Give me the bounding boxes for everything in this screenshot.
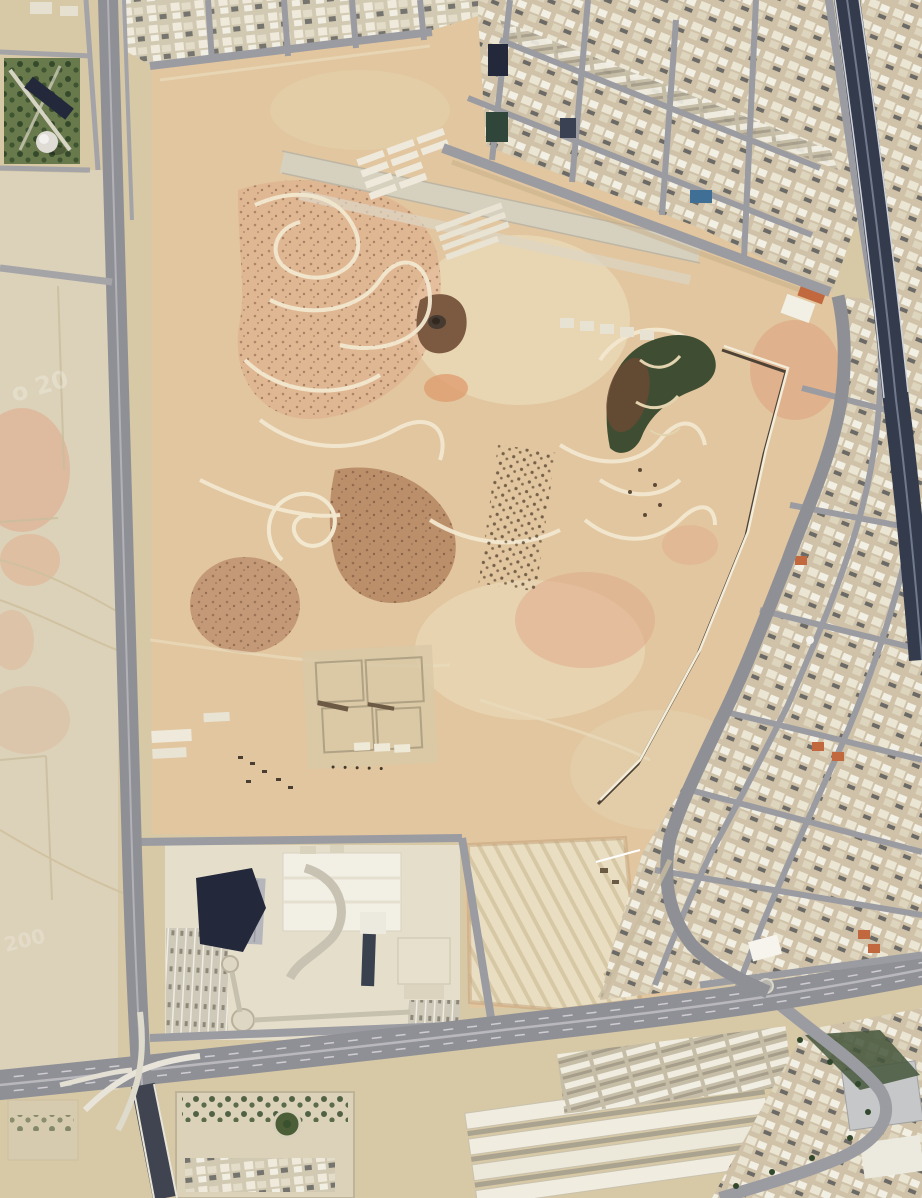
dark-green-building <box>486 112 508 142</box>
park-block <box>0 52 92 170</box>
satellite-map-viewport[interactable]: o 20 200 <box>0 0 922 1198</box>
tower-building <box>360 912 386 934</box>
pool <box>690 190 712 203</box>
ruins-site <box>302 645 438 774</box>
mall-complex <box>136 838 500 1040</box>
roundabout-small <box>222 956 238 972</box>
dark-building <box>488 44 508 76</box>
roundabout-large <box>232 1009 254 1031</box>
tower-shadow <box>361 934 376 986</box>
satellite-image: o 20 200 <box>0 0 922 1198</box>
walled-compound <box>176 1092 354 1198</box>
